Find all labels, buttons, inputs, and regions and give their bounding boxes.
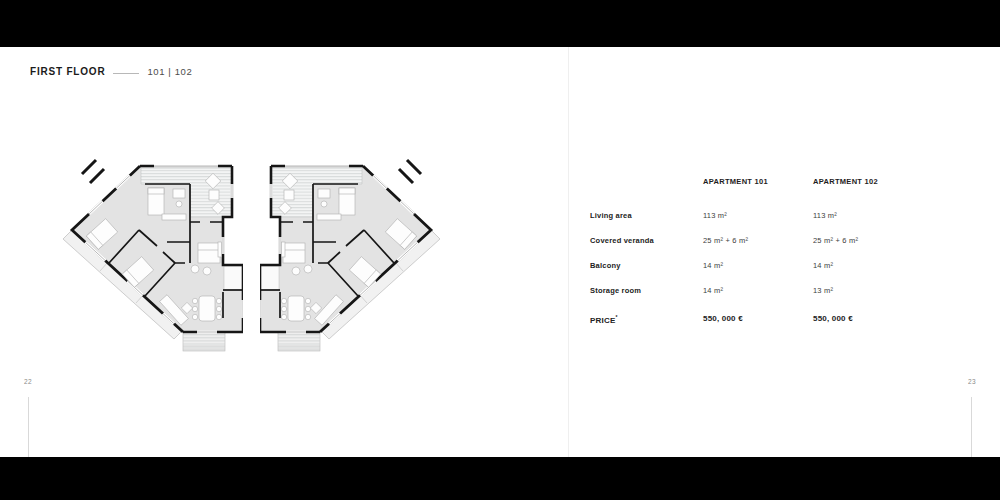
table-row: Balcony 14 m² 14 m² xyxy=(590,261,920,270)
spacer xyxy=(590,177,703,186)
page-number-left: 22 xyxy=(24,378,32,385)
price-value-101: 550, 000 € xyxy=(703,314,813,325)
row-label: Covered veranda xyxy=(590,236,703,245)
row-value-101: 113 m² xyxy=(703,211,813,220)
bottom-black-bar xyxy=(0,457,1000,500)
brochure-spread: { "header": { "title": "FIRST FLOOR", "u… xyxy=(0,0,1000,500)
row-value-101: 14 m² xyxy=(703,286,813,295)
spec-header-row: APARTMENT 101 APARTMENT 102 xyxy=(590,177,920,186)
price-row: PRICE* 550, 000 € 550, 000 € xyxy=(590,314,920,325)
row-value-102: 113 m² xyxy=(813,211,920,220)
right-fold-mark xyxy=(971,397,972,457)
top-black-bar xyxy=(0,0,1000,47)
table-row: Covered veranda 25 m² + 6 m² 25 m² + 6 m… xyxy=(590,236,920,245)
row-value-101: 14 m² xyxy=(703,261,813,270)
price-label: PRICE* xyxy=(590,314,703,325)
left-fold-mark xyxy=(28,397,29,457)
page-number-right: 23 xyxy=(968,378,976,385)
row-value-101: 25 m² + 6 m² xyxy=(703,236,813,245)
table-row: Living area 113 m² 113 m² xyxy=(590,211,920,220)
page-title: FIRST FLOOR xyxy=(30,66,105,77)
header-rule xyxy=(113,73,139,74)
col-header-apartment-101: APARTMENT 101 xyxy=(703,177,813,186)
page-header: FIRST FLOOR 101 | 102 xyxy=(30,66,192,77)
row-value-102: 25 m² + 6 m² xyxy=(813,236,920,245)
price-value-102: 550, 000 € xyxy=(813,314,920,325)
row-label: Living area xyxy=(590,211,703,220)
row-label: Storage room xyxy=(590,286,703,295)
floor-plan-102 xyxy=(260,142,441,352)
table-row: Storage room 14 m² 13 m² xyxy=(590,286,920,295)
col-header-apartment-102: APARTMENT 102 xyxy=(813,177,920,186)
row-value-102: 13 m² xyxy=(813,286,920,295)
price-footnote-mark: * xyxy=(615,314,617,320)
page-crease-divider xyxy=(568,47,569,457)
row-value-102: 14 m² xyxy=(813,261,920,270)
floor-plan-101 xyxy=(62,142,243,352)
row-label: Balcony xyxy=(590,261,703,270)
unit-numbers: 101 | 102 xyxy=(147,66,192,77)
